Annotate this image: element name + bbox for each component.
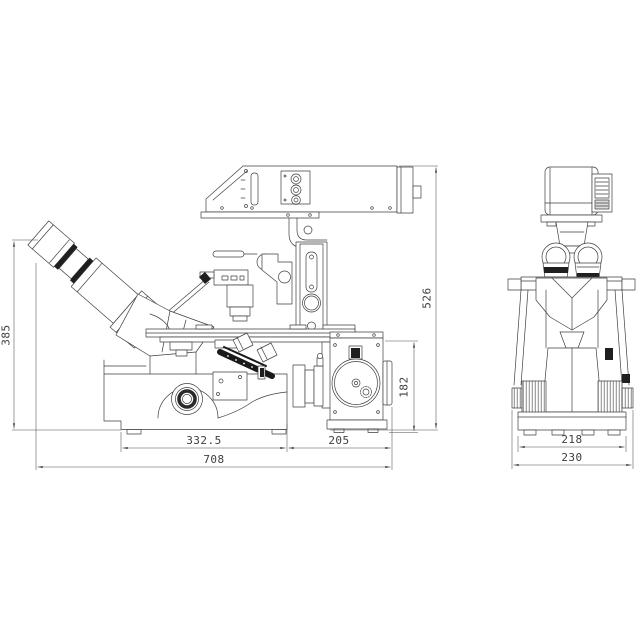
side-overall-height-dim: 526 (422, 287, 433, 308)
side-eyepiece-height-dim: 385 (1, 324, 12, 345)
side-base-width-dim: 332.5 (186, 435, 222, 446)
front-view-drawing (508, 167, 635, 435)
front-overall-width-dim: 230 (561, 452, 582, 463)
side-overall-width-dim: 708 (203, 454, 224, 465)
microscope-dimension-drawing: 385 526 182 332.5 205 708 218 230 (0, 0, 640, 640)
focus-knob[interactable] (172, 384, 203, 415)
support-pillar (289, 218, 355, 340)
side-port-width-dim: 205 (328, 435, 349, 446)
base-front (518, 412, 626, 435)
front-base-width-dim: 218 (561, 434, 582, 445)
illuminator-arm (201, 166, 421, 218)
head-front (536, 278, 607, 348)
camera-port-module (293, 332, 392, 433)
side-port-height-dim: 182 (399, 376, 410, 397)
lamp-house (541, 167, 612, 253)
side-view-drawing (23, 166, 421, 434)
line-art (0, 0, 640, 640)
